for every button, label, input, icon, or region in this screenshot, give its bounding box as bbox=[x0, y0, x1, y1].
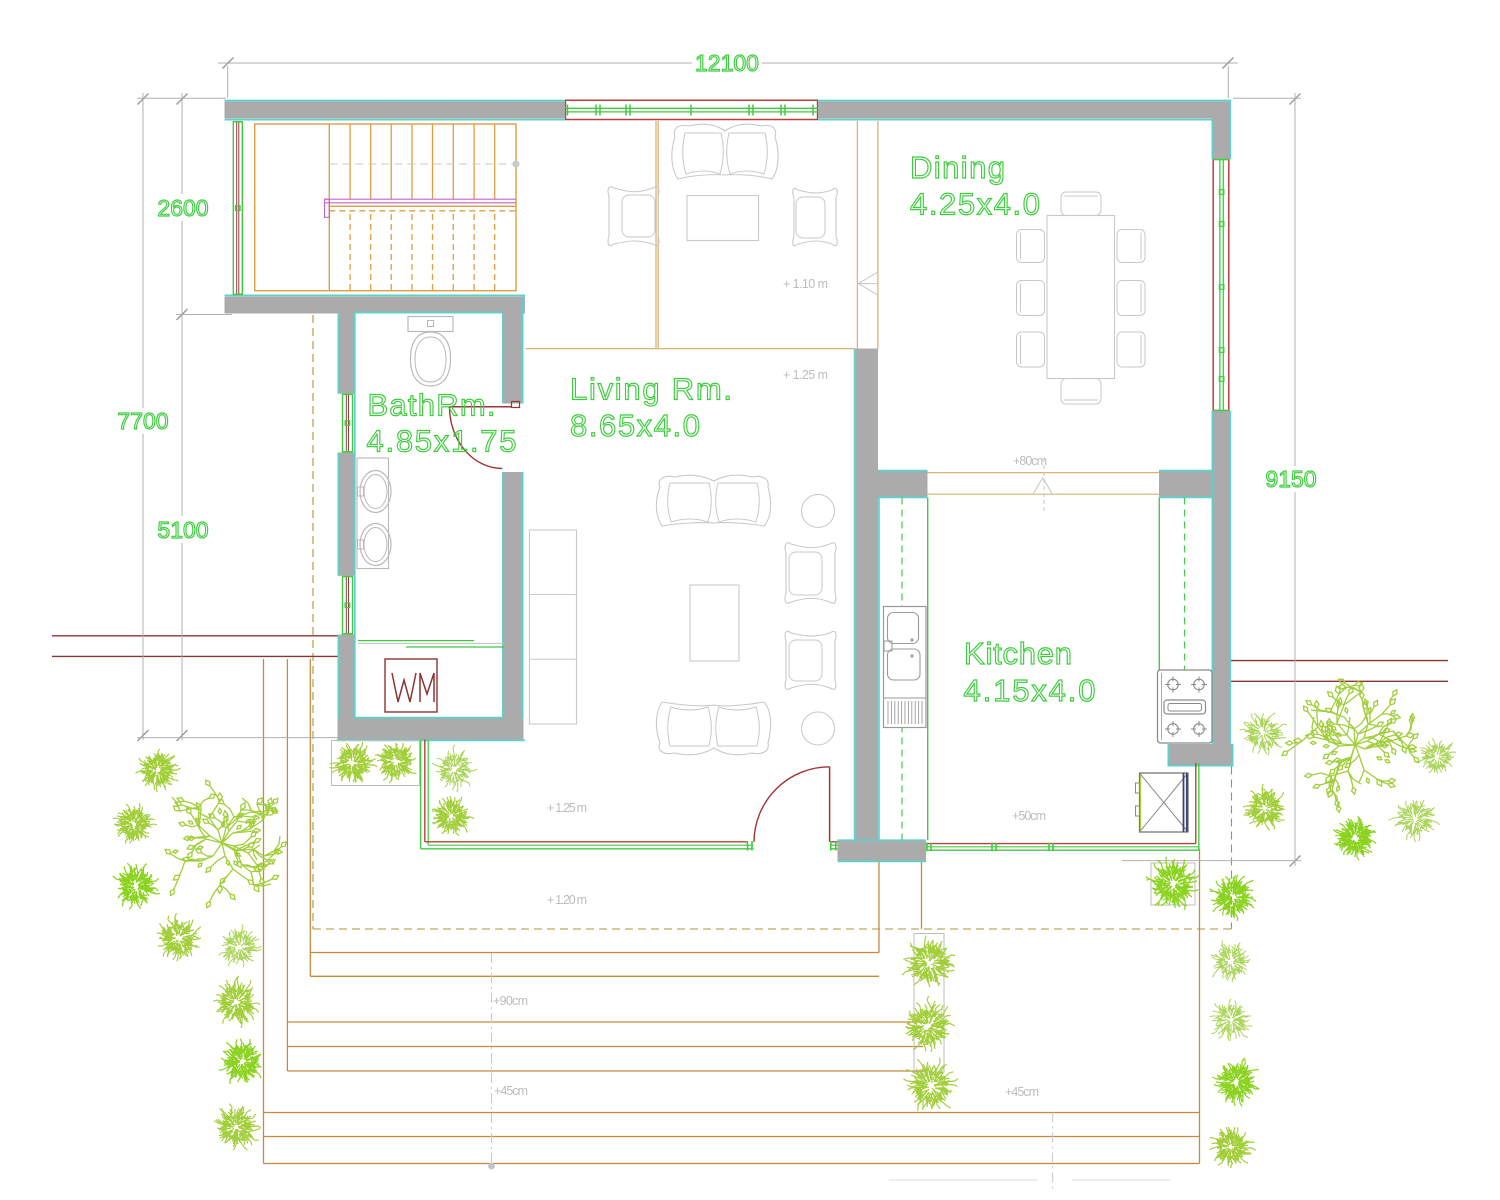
svg-text:5100: 5100 bbox=[157, 517, 208, 543]
svg-text:4.25x4.0: 4.25x4.0 bbox=[910, 187, 1040, 222]
svg-text:7700: 7700 bbox=[117, 408, 168, 434]
svg-text:+80cm: +80cm bbox=[1013, 454, 1047, 468]
svg-text:9150: 9150 bbox=[1265, 466, 1316, 492]
svg-text:+50cm: +50cm bbox=[1012, 809, 1046, 823]
svg-text:4.85x1.75: 4.85x1.75 bbox=[367, 424, 517, 459]
svg-text:Dining: Dining bbox=[910, 150, 1005, 185]
svg-text:2600: 2600 bbox=[157, 195, 208, 221]
svg-text:+ 1.25 m: + 1.25 m bbox=[547, 801, 587, 815]
svg-text:+90cm: +90cm bbox=[493, 994, 528, 1008]
svg-text:Kitchen: Kitchen bbox=[964, 636, 1072, 671]
svg-text:+45cm: +45cm bbox=[1005, 1085, 1039, 1099]
svg-text:BathRm.: BathRm. bbox=[368, 388, 496, 423]
svg-text:+ 1.25 m: + 1.25 m bbox=[783, 368, 828, 382]
svg-text:8.65x4.0: 8.65x4.0 bbox=[570, 408, 700, 443]
svg-text:+45cm: +45cm bbox=[494, 1084, 528, 1098]
svg-text:12100: 12100 bbox=[695, 50, 759, 76]
svg-text:+ 1.20 m: + 1.20 m bbox=[547, 893, 587, 907]
svg-text:+ 1.10 m: + 1.10 m bbox=[783, 277, 828, 291]
svg-text:Living Rm.: Living Rm. bbox=[570, 372, 732, 407]
